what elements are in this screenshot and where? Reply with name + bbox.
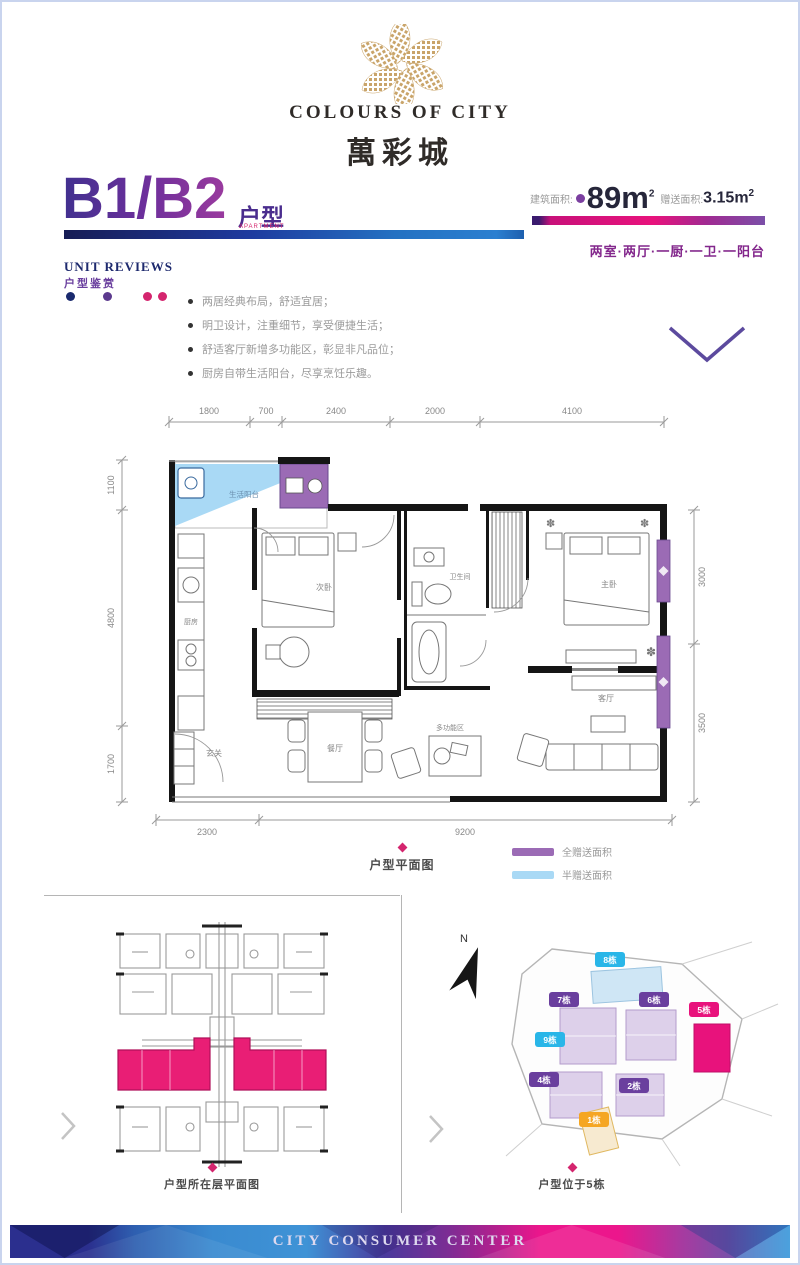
plant-icon: ✽ xyxy=(640,518,649,530)
site-plan-caption: 户型位于5栋 xyxy=(492,1164,652,1192)
dim-top xyxy=(165,416,668,428)
svg-text:4100: 4100 xyxy=(562,406,582,416)
reviews-dots xyxy=(66,292,167,301)
gift-area-value: 3.15m2 xyxy=(703,188,754,210)
purple-dot-icon xyxy=(103,292,112,301)
north-compass-icon: N xyxy=(449,933,491,999)
plant-icon: ✽ xyxy=(646,645,656,659)
chevron-right-icon[interactable] xyxy=(430,1116,442,1142)
multi-zone-furniture xyxy=(391,736,481,779)
reviews-title-en: UNIT REVIEWS xyxy=(64,259,173,275)
dim-top-labels: 1800 700 2400 2000 4100 xyxy=(199,406,582,416)
reviews-title-cn: 户型鉴赏 xyxy=(64,275,116,291)
footer-banner: CITY CONSUMER CENTER xyxy=(10,1225,790,1258)
review-bullet: 两居经典布局，舒适宜居； xyxy=(188,290,518,314)
floor-units-outline xyxy=(120,922,324,1167)
svg-text:餐厅: 餐厅 xyxy=(327,744,343,753)
dim-bottom-labels: 2300 9200 xyxy=(197,827,475,837)
svg-text:生活阳台: 生活阳台 xyxy=(229,489,259,499)
living-furniture xyxy=(517,676,658,770)
review-bullet: 明卫设计，注重细节，享受便捷生活； xyxy=(188,314,518,338)
gift-storage-area xyxy=(280,464,328,508)
svg-text:7栋: 7栋 xyxy=(557,995,571,1005)
highlighted-building xyxy=(694,1024,730,1072)
section-divider-horizontal xyxy=(44,895,400,896)
magenta-dot-icon xyxy=(143,292,152,301)
brand-flower-logo xyxy=(344,24,460,104)
kitchen-fixtures xyxy=(178,534,204,730)
floorplan-caption: 户型平面图 xyxy=(332,844,472,873)
navy-dot-icon xyxy=(66,292,75,301)
svg-text:N: N xyxy=(460,933,468,945)
entry-cabinet xyxy=(174,732,194,784)
gift-area-legend: 全赠送面积 半赠送面积 xyxy=(512,844,612,890)
layout-description: 两室·两厅·一厨·一卫·一阳台 xyxy=(502,241,765,260)
dim-right xyxy=(688,506,700,806)
dim-left-labels: 1100 4800 1700 xyxy=(106,475,116,774)
svg-text:主卧: 主卧 xyxy=(601,579,617,589)
brand-name-en: COLOURS OF CITY xyxy=(2,102,798,124)
footer-text: CITY CONSUMER CENTER xyxy=(10,1225,790,1258)
review-bullet-list: 两居经典布局，舒适宜居； 明卫设计，注重细节，享受便捷生活； 舒适客厅新增多功能… xyxy=(188,290,518,386)
flyer-page: COLOURS OF CITY 萬彩城 B1/B2 户型 APARTMENT 建… xyxy=(0,0,800,1265)
dim-left xyxy=(116,456,128,806)
diamond-marker-icon xyxy=(567,1163,577,1173)
build-area-label: 建筑面积: xyxy=(530,191,573,211)
build-area-value: 89m2 xyxy=(587,186,655,211)
dim-bottom xyxy=(152,814,676,826)
legend-row: 半赠送面积 xyxy=(512,867,612,882)
unit-code-title: B1/B2 xyxy=(62,170,226,228)
second-bedroom-furniture xyxy=(262,533,356,667)
floorplan-drawing: 1800 700 2400 2000 4100 1100 4800 1700 3… xyxy=(94,400,714,845)
svg-text:卫生间: 卫生间 xyxy=(450,572,471,581)
svg-text:1800: 1800 xyxy=(199,406,219,416)
legend-row: 全赠送面积 xyxy=(512,844,612,859)
svg-text:8栋: 8栋 xyxy=(603,955,617,965)
diamond-marker-icon xyxy=(397,843,407,853)
svg-text:多功能区: 多功能区 xyxy=(436,723,464,732)
svg-text:700: 700 xyxy=(258,406,273,416)
purple-dot-icon xyxy=(576,194,585,203)
site-plan: N 8栋 7栋 6栋 9栋 xyxy=(422,924,782,1169)
svg-text:2栋: 2栋 xyxy=(627,1081,641,1091)
title-gradient-bar-left xyxy=(64,230,524,239)
full-gift-swatch xyxy=(512,848,554,856)
svg-text:玄关: 玄关 xyxy=(206,748,222,758)
svg-text:3000: 3000 xyxy=(697,567,707,587)
floor-level-plan xyxy=(102,922,342,1167)
plant-icon: ✽ xyxy=(546,518,555,530)
sliding-door xyxy=(572,668,618,671)
diamond-marker-icon xyxy=(207,1163,217,1173)
svg-text:2300: 2300 xyxy=(197,827,217,837)
flower-petals xyxy=(359,24,446,104)
dim-right-labels: 3000 3500 xyxy=(697,567,707,733)
review-bullet: 厨房自带生活阳台，尽享烹饪乐趣。 xyxy=(188,362,518,386)
svg-text:2400: 2400 xyxy=(326,406,346,416)
svg-text:9栋: 9栋 xyxy=(543,1035,557,1045)
svg-text:次卧: 次卧 xyxy=(316,582,332,592)
section-divider-vertical xyxy=(401,895,402,1213)
chevron-down-icon[interactable] xyxy=(662,322,752,368)
svg-text:2000: 2000 xyxy=(425,406,445,416)
area-stats: 建筑面积: 89m2 赠送面积: 3.15m2 xyxy=(530,186,770,211)
gift-area-label: 赠送面积: xyxy=(660,191,703,211)
master-bedroom-furniture xyxy=(546,533,649,663)
svg-text:5栋: 5栋 xyxy=(697,1005,711,1015)
svg-text:1栋: 1栋 xyxy=(587,1115,601,1125)
svg-text:厨房: 厨房 xyxy=(184,617,198,626)
svg-text:1100: 1100 xyxy=(106,475,116,494)
svg-text:9200: 9200 xyxy=(455,827,475,837)
svg-text:4栋: 4栋 xyxy=(537,1075,551,1085)
chevron-right-icon[interactable] xyxy=(58,1110,78,1142)
svg-text:1700: 1700 xyxy=(106,754,116,774)
svg-text:3500: 3500 xyxy=(697,713,707,733)
svg-text:4800: 4800 xyxy=(106,608,116,628)
half-gift-swatch xyxy=(512,871,554,879)
magenta-dot-icon xyxy=(158,292,167,301)
floor-level-caption: 户型所在层平面图 xyxy=(132,1164,292,1192)
review-bullet: 舒适客厅新增多功能区，彰显非凡品位； xyxy=(188,338,518,362)
svg-text:客厅: 客厅 xyxy=(598,693,614,703)
closet-hatch xyxy=(492,512,522,608)
title-gradient-bar-right xyxy=(532,216,765,225)
svg-text:6栋: 6栋 xyxy=(647,995,661,1005)
